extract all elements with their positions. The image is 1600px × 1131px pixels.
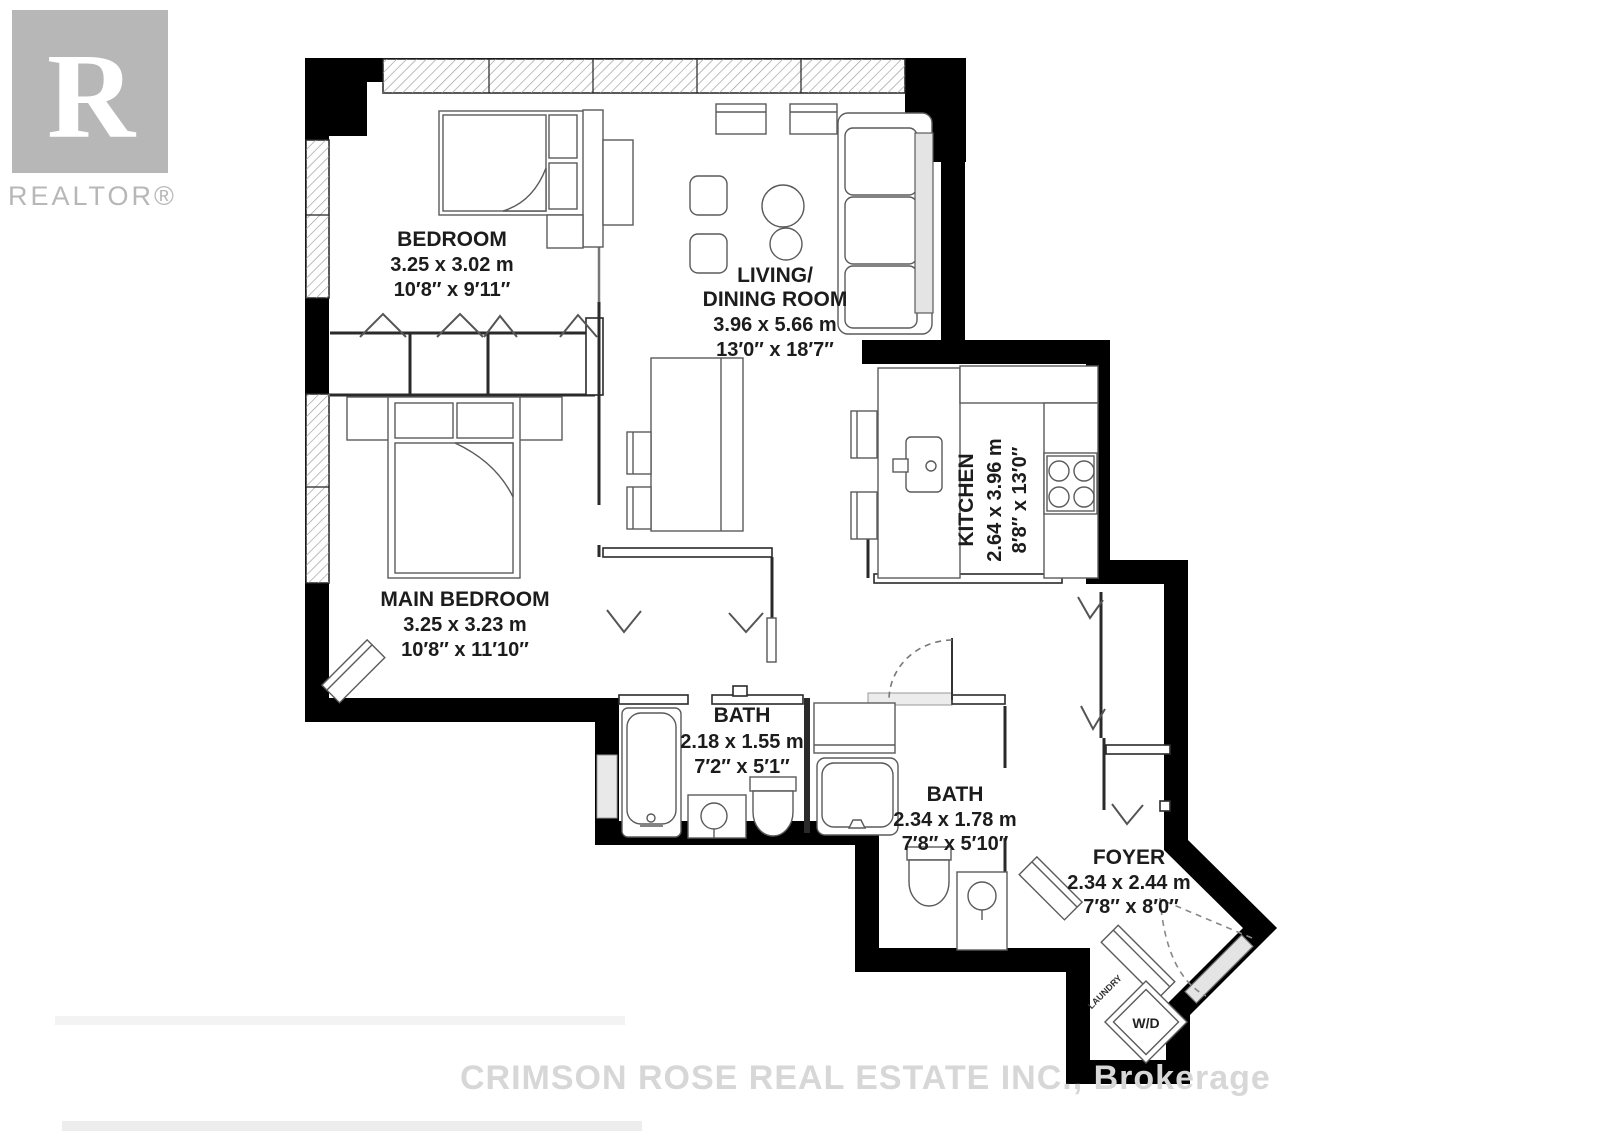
kitchen-counter-top — [960, 366, 1098, 403]
door-chevron — [729, 613, 763, 632]
room-imperial: 10′8″ x 9′11″ — [394, 279, 511, 301]
sink-handle — [893, 459, 908, 472]
nightstand — [518, 397, 562, 440]
dining-chair — [627, 432, 651, 474]
bench — [322, 640, 385, 703]
room-metric: 2.34 x 1.78 m — [893, 809, 1016, 831]
door-jamb — [1160, 801, 1170, 811]
toilet — [750, 777, 796, 836]
label-kitchen: KITCHEN 2.64 x 3.96 m 8′8″ x 13′0″ — [955, 438, 1031, 561]
room-title: BEDROOM — [397, 228, 507, 251]
realtor-logo: R REALTOR® — [8, 10, 177, 211]
wall-bath2-top-right — [952, 695, 1005, 704]
room-title: KITCHEN — [955, 453, 978, 546]
room-imperial: 13′0″ x 18′7″ — [716, 339, 834, 361]
nightstand — [347, 397, 390, 440]
door-chevron — [1112, 804, 1143, 824]
room-metric: 3.25 x 3.02 m — [390, 254, 513, 276]
nightstand — [547, 215, 583, 248]
sink — [968, 882, 996, 910]
sink — [701, 803, 727, 829]
room-imperial: 10′8″ x 11′10″ — [401, 639, 529, 661]
room-title: BATH — [714, 704, 771, 727]
stove — [1044, 453, 1097, 514]
room-metric: 2.18 x 1.55 m — [680, 731, 803, 753]
round-table-small — [770, 228, 802, 260]
laundry-label: LAUNDRY — [1086, 973, 1124, 1011]
side-table — [790, 104, 837, 134]
dining-table — [651, 358, 743, 531]
label-bath2: BATH 2.34 x 1.78 m 7′8″ x 5′10″ — [893, 783, 1016, 855]
brokerage-watermark: CRIMSON ROSE REAL ESTATE INC., Brokerage — [460, 1059, 1271, 1097]
label-living-dining: LIVING/ DINING ROOM 3.96 x 5.66 m 13′0″ … — [703, 264, 848, 361]
room-title: LIVING/ — [737, 264, 813, 287]
toilet — [907, 847, 951, 906]
kitchen-sink — [906, 437, 942, 492]
room-imperial: 7′8″ x 5′10″ — [902, 833, 1009, 855]
round-table — [762, 185, 804, 227]
realtor-logo-label: REALTOR® — [8, 181, 177, 211]
bath2-door-swing — [889, 640, 952, 699]
washer-dryer-label: W/D — [1132, 1015, 1159, 1031]
room-imperial: 7′8″ x 8′0″ — [1083, 896, 1179, 918]
window-bath — [597, 755, 617, 818]
entry-door — [1185, 935, 1253, 1003]
label-main-bedroom: MAIN BEDROOM 3.25 x 3.23 m 10′8″ x 11′10… — [380, 588, 549, 661]
stool — [851, 411, 877, 458]
realtor-logo-letter: R — [47, 29, 137, 164]
artifact-strip-2 — [62, 1121, 642, 1131]
wall-bath1-top-left — [619, 695, 688, 704]
side-table — [716, 104, 766, 134]
label-bath1: BATH 2.18 x 1.55 m 7′2″ x 5′1″ — [680, 704, 803, 778]
room-imperial: 7′2″ x 5′1″ — [694, 756, 790, 778]
stool — [851, 492, 877, 539]
room-metric: 3.25 x 3.23 m — [403, 614, 526, 636]
door-chevron — [607, 610, 641, 632]
pillow — [549, 163, 577, 209]
sofa-cushion — [845, 266, 917, 328]
dresser — [603, 140, 633, 225]
window-top — [383, 59, 905, 93]
wall-kitchen-top-ext — [862, 340, 957, 364]
room-metric: 2.64 x 3.96 m — [984, 438, 1006, 561]
room-metric: 2.34 x 2.44 m — [1067, 872, 1190, 894]
room-title: MAIN BEDROOM — [380, 588, 549, 611]
shower-inner — [822, 763, 893, 827]
console-table — [915, 133, 933, 313]
dining-furniture — [627, 358, 743, 531]
room-title: BATH — [927, 783, 984, 806]
sofa-cushion — [845, 197, 917, 264]
room-imperial: 8′8″ x 13′0″ — [1009, 446, 1031, 553]
floor-plan: R REALTOR® — [0, 0, 1600, 1131]
pillow — [457, 403, 513, 438]
room-title: DINING ROOM — [703, 288, 848, 311]
sofa-cushion — [845, 128, 917, 195]
label-bedroom: BEDROOM 3.25 x 3.02 m 10′8″ x 9′11″ — [390, 228, 513, 301]
window-left-upper — [306, 140, 329, 298]
wall-bath1-top-right — [712, 695, 803, 704]
ottoman — [690, 234, 727, 273]
bathtub-inner — [627, 713, 676, 824]
hall-door-leaf — [767, 618, 776, 662]
ottoman — [690, 176, 727, 215]
pillow — [549, 115, 577, 158]
artifact-strip-1 — [55, 1016, 625, 1025]
window-left-lower — [306, 394, 329, 583]
headboard — [583, 110, 603, 247]
wall-foyer-closet-top — [1106, 745, 1170, 754]
pillow — [395, 403, 453, 438]
wall-hall-top — [603, 548, 772, 557]
room-title: FOYER — [1093, 846, 1165, 869]
dining-chair — [627, 487, 651, 529]
room-metric: 3.96 x 5.66 m — [713, 314, 836, 336]
wall-corner-topleft — [305, 58, 367, 136]
door-chevron — [1078, 597, 1103, 618]
faucet — [926, 461, 936, 471]
door-jamb — [733, 686, 747, 696]
